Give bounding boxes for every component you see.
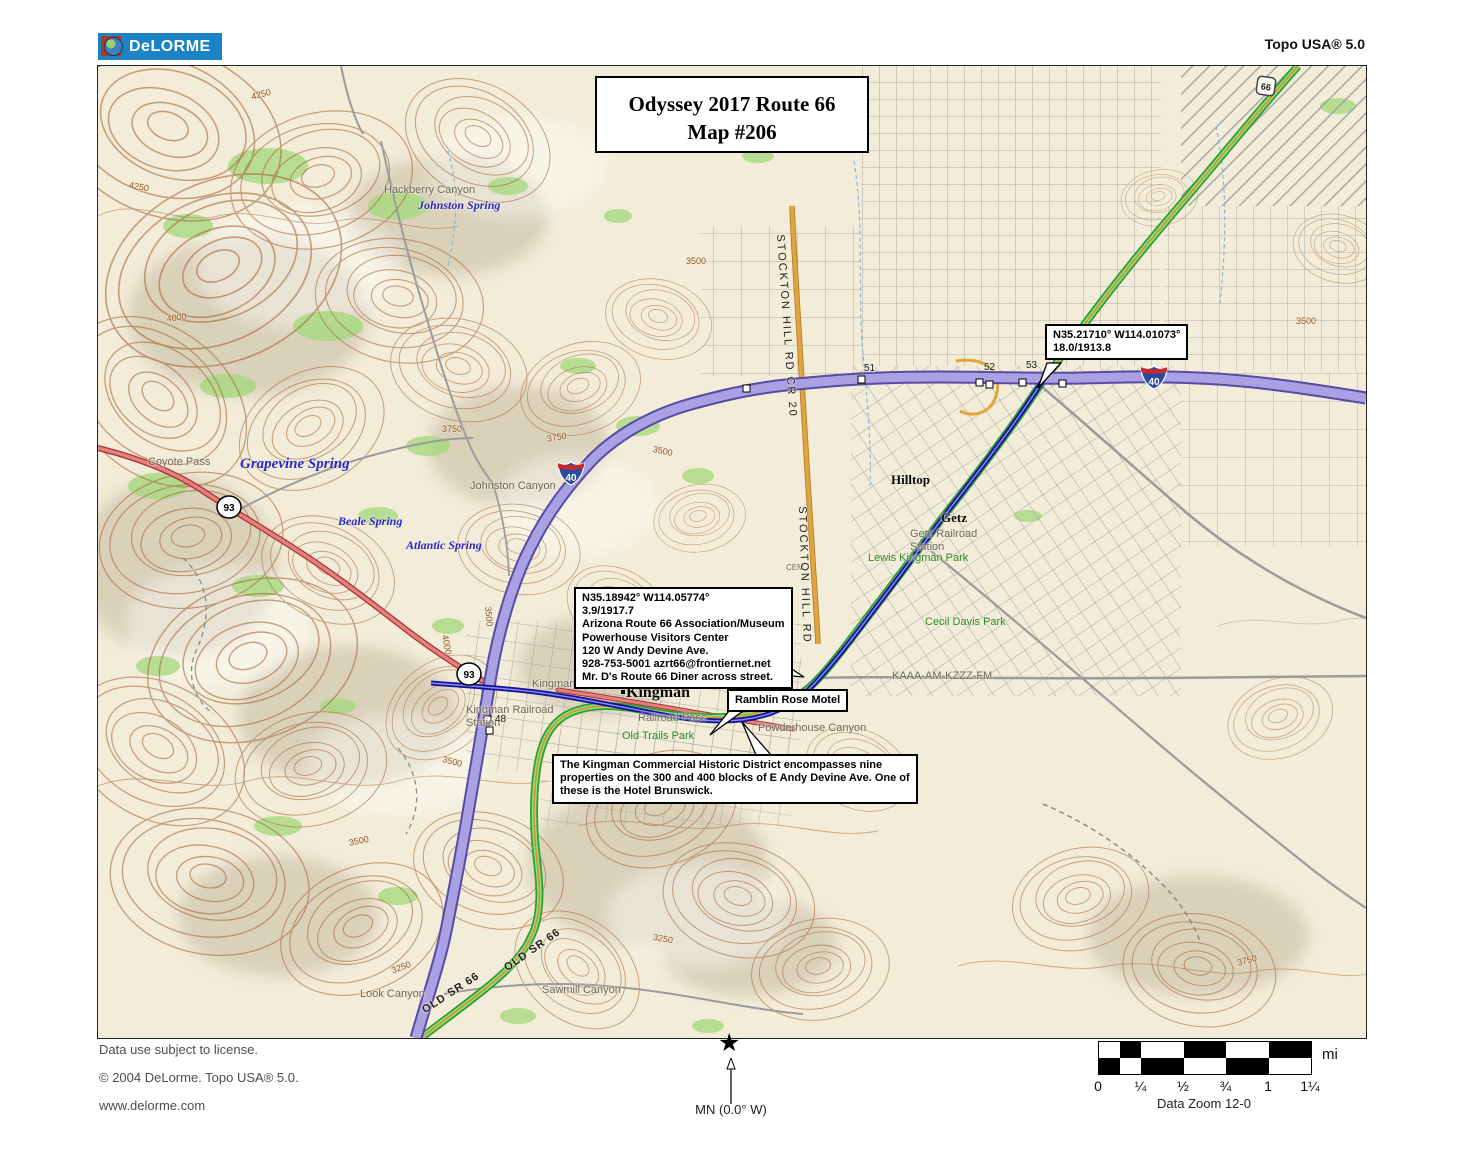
data-zoom-level: Data Zoom 12-0 (1098, 1096, 1310, 1111)
us-93-shield: 93 (457, 663, 481, 685)
svg-text:40: 40 (565, 473, 577, 484)
route-66-shield: 66 (1256, 76, 1276, 96)
map-title-line2: Map #206 (597, 118, 867, 146)
map-title-line1: Odyssey 2017 Route 66 (597, 90, 867, 118)
callout-ramblin-rose-motel[interactable]: Ramblin Rose Motel (727, 689, 848, 712)
website-link[interactable]: www.delorme.com (99, 1098, 205, 1113)
north-arrow-icon (724, 1058, 738, 1104)
logo-text: DeLORME (129, 38, 211, 56)
callout-waypoint-53[interactable]: N35.21710° W114.01073° 18.0/1913.8 (1045, 324, 1188, 360)
map-canvas[interactable]: 40 40 93 93 66 (97, 65, 1367, 1039)
scale-tick: ¼ (1135, 1078, 1147, 1094)
scale-bar-top-row (1099, 1042, 1311, 1058)
app-window: DeLORME Topo USA® 5.0 (0, 0, 1463, 1162)
globe-icon (101, 35, 125, 58)
callout-powerhouse-museum[interactable]: N35.18942° W114.05774° 3.9/1917.7 Arizon… (574, 587, 793, 689)
kingman-town-marker (621, 690, 625, 694)
svg-text:66: 66 (1260, 81, 1271, 92)
magnetic-north-label: MN (0.0° W) (671, 1102, 791, 1117)
scale-bar-bottom-row (1099, 1058, 1311, 1074)
us-93-shield: 93 (217, 496, 241, 518)
scale-tick: ¾ (1220, 1078, 1232, 1094)
map-svg: 40 40 93 93 66 (98, 66, 1366, 1038)
delorme-logo: DeLORME (98, 33, 222, 60)
license-note: Data use subject to license. (99, 1042, 258, 1057)
scale-tick: ½ (1177, 1078, 1189, 1094)
product-name: Topo USA® 5.0 (1265, 36, 1365, 52)
scale-tick: 0 (1094, 1078, 1102, 1094)
scale-tick: 1¼ (1300, 1078, 1319, 1094)
scale-bar (1098, 1041, 1312, 1075)
svg-text:93: 93 (463, 670, 475, 681)
scale-unit-label: mi (1322, 1046, 1338, 1063)
scale-tick-labels: 0 ¼ ½ ¾ 1 1¼ (1098, 1078, 1310, 1096)
copyright-note: © 2004 DeLorme. Topo USA® 5.0. (99, 1070, 299, 1085)
scale-tick: 1 (1264, 1078, 1272, 1094)
svg-text:93: 93 (223, 503, 235, 514)
svg-text:40: 40 (1148, 377, 1160, 388)
callout-historic-district[interactable]: The Kingman Commercial Historic District… (552, 754, 918, 804)
map-title-box[interactable]: Odyssey 2017 Route 66 Map #206 (595, 76, 869, 153)
north-star-icon: ★ (718, 1031, 740, 1056)
